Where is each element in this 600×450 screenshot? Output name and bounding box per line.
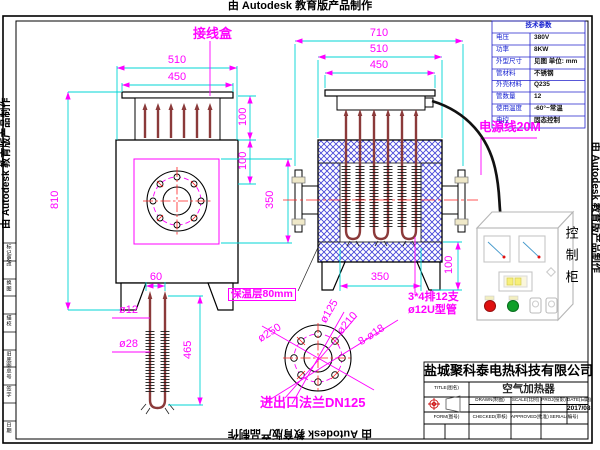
- dim-60: 60: [146, 272, 166, 284]
- dim-350-mid: 350: [265, 185, 277, 215]
- dim-710: 710: [357, 28, 401, 40]
- tube-count-label-1: 3*4排12支: [408, 292, 459, 304]
- dim-510-front: 510: [357, 44, 401, 56]
- dim-450-left: 450: [157, 72, 197, 84]
- dim-phi12: ø12: [108, 305, 138, 317]
- param-label-0: 电压: [496, 35, 509, 42]
- param-label-4: 外壳材料: [496, 82, 522, 89]
- scale-label: SCALE(比例): [511, 398, 540, 403]
- dim-510-left: 510: [157, 55, 197, 67]
- dim-100-b: 100: [238, 146, 250, 176]
- serial-label: SERIAL(编号): [541, 415, 587, 420]
- tube-count-label-2: ø12U型管: [408, 305, 457, 317]
- red-indicator: [485, 301, 496, 312]
- dim-350-bottom: 350: [358, 272, 402, 284]
- dim-phi28: ø28: [108, 339, 138, 351]
- param-value-2: 见图 单位: mm: [534, 59, 577, 66]
- dim-100-leg: 100: [444, 250, 456, 280]
- dim-450-front: 450: [357, 60, 401, 72]
- date-label: DATE(日期): [567, 398, 588, 403]
- form-label: FORM(图号): [425, 415, 468, 420]
- dim-465: 465: [183, 335, 195, 365]
- param-label-7: 电控: [496, 118, 509, 125]
- control-cabinet: [477, 212, 573, 320]
- param-label-6: 使用温度: [496, 106, 522, 113]
- dim-810: 810: [50, 185, 62, 215]
- watermark-top: 由 Autodesk 教育版产品制作: [215, 1, 385, 13]
- rev-row-5: 日期: [5, 422, 10, 433]
- watermark-left: 由 Autodesk 教育版产品制作: [2, 78, 13, 248]
- param-value-6: -60°~常温: [534, 106, 563, 113]
- rev-row-1: 换图: [5, 280, 10, 291]
- company-name: 盐城聚科泰电热科技有限公司: [424, 364, 588, 378]
- param-value-0: 380V: [534, 35, 549, 42]
- params-title: 技术参数: [492, 23, 585, 30]
- rev-row-0: 标记更改: [5, 244, 10, 267]
- param-value-5: 12: [534, 94, 541, 101]
- param-label-5: 管数量: [496, 94, 516, 101]
- rev-row-3: 旧底图总号: [5, 351, 10, 380]
- rev-row-2: 描校: [5, 315, 10, 326]
- control-cabinet-label: 控制柜: [564, 226, 578, 292]
- param-label-1: 功率: [496, 47, 509, 54]
- param-value-4: Q235: [534, 82, 550, 89]
- junction-box-label: 接线盒: [193, 27, 232, 41]
- param-value-1: 8KW: [534, 47, 548, 54]
- green-indicator: [508, 301, 519, 312]
- title-label: TITLE(图名): [425, 386, 468, 391]
- proj-label: PROJ(投影): [541, 398, 566, 403]
- insulation-label: 保温层80mm: [228, 288, 296, 301]
- watermark-right: 由 Autodesk 教育版产品制作: [589, 122, 600, 292]
- param-label-3: 管材料: [496, 71, 516, 78]
- drawing-title: 空气加热器: [470, 384, 587, 395]
- flange-note-label: 进出口法兰DN125: [260, 396, 365, 410]
- heating-tubes: [342, 109, 421, 246]
- approved-label: APPROVED(批准): [511, 415, 540, 420]
- dim-100-a: 100: [238, 102, 250, 132]
- param-value-3: 不锈钢: [534, 71, 554, 78]
- date-value: 2017/08: [567, 406, 588, 413]
- param-label-2: 外型尺寸: [496, 59, 522, 66]
- left-view: [116, 92, 238, 310]
- checked-label: CHECKED(审核): [470, 415, 510, 420]
- watermark-bottom: 由 Autodesk 教育版产品制作: [215, 427, 385, 439]
- cad-drawing-sheet: 由 Autodesk 教育版产品制作 由 Autodesk 教育版产品制作 由 …: [0, 0, 600, 450]
- param-value-7: 固态控制: [534, 118, 560, 125]
- power-cable-label: 电源线20M: [479, 121, 541, 134]
- drawn-label: DRAWN(制图): [470, 398, 510, 403]
- rev-row-4: 签字: [5, 386, 10, 397]
